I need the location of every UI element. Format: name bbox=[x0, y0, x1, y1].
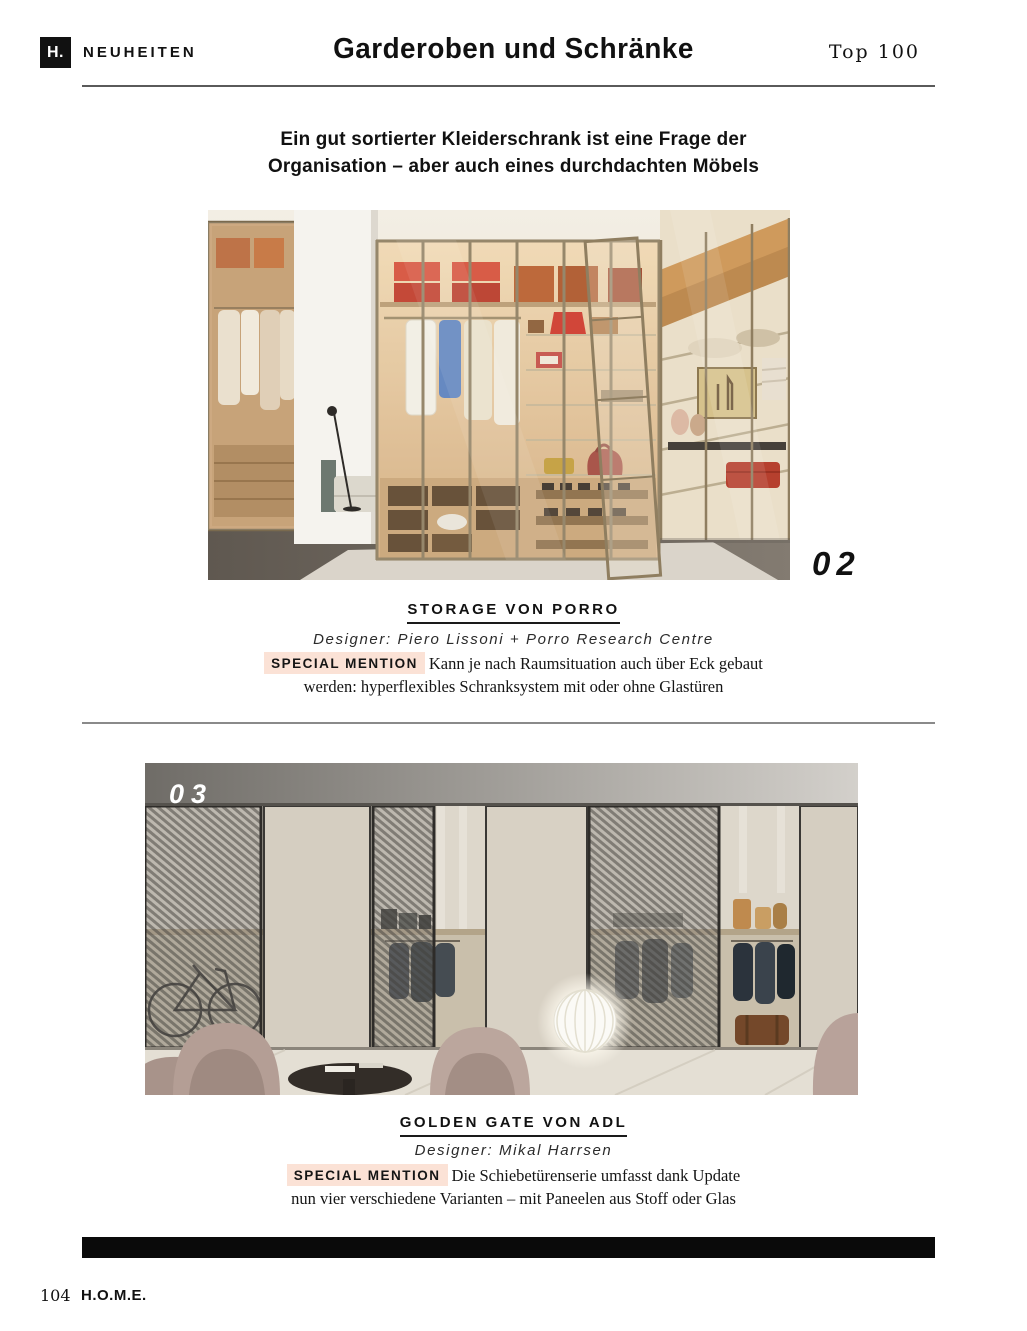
item-number-03: 03 bbox=[169, 779, 213, 810]
item-number-02: 02 bbox=[812, 545, 861, 583]
walk-in-closet-illustration bbox=[208, 210, 790, 580]
item-title: GOLDEN GATE VON ADL bbox=[400, 1114, 628, 1137]
item-title: STORAGE VON PORRO bbox=[407, 601, 619, 624]
description-line-1: SPECIAL MENTIONKann je nach Raumsituatio… bbox=[0, 652, 1027, 674]
suitcase bbox=[735, 1015, 789, 1045]
left-wardrobe bbox=[208, 222, 300, 530]
intro-text: Ein gut sortierter Kleiderschrank ist ei… bbox=[15, 126, 1011, 180]
sphere-lamp bbox=[537, 973, 633, 1069]
description-line-1: SPECIAL MENTIONDie Schiebetürenserie umf… bbox=[0, 1164, 1027, 1186]
mesh-door-panels bbox=[145, 806, 719, 1048]
page-number: 104 bbox=[40, 1286, 71, 1305]
item-description: SPECIAL MENTIONDie Schiebetürenserie umf… bbox=[0, 1161, 1027, 1208]
corner-shelf-unit bbox=[660, 210, 790, 543]
description-text-1: Die Schiebetürenserie umfasst dank Updat… bbox=[452, 1166, 741, 1185]
special-mention-badge: SPECIAL MENTION bbox=[287, 1164, 448, 1186]
sliding-door-illustration bbox=[145, 763, 858, 1095]
header-rule bbox=[82, 85, 935, 87]
photo-walk-in-closet bbox=[208, 210, 790, 580]
section-divider bbox=[82, 722, 935, 724]
description-text-1: Kann je nach Raumsituation auch über Eck… bbox=[429, 654, 763, 673]
item-description: SPECIAL MENTIONKann je nach Raumsituatio… bbox=[0, 649, 1027, 696]
hanging-jackets-right bbox=[731, 941, 795, 1004]
intro-line-1: Ein gut sortierter Kleiderschrank ist ei… bbox=[15, 126, 1011, 153]
magazine-page: H. NEUHEITEN Garderoben und Schränke Top… bbox=[0, 0, 1027, 1331]
description-line-2: werden: hyperflexibles Schranksystem mit… bbox=[0, 677, 1027, 696]
item-2-caption: GOLDEN GATE VON ADL bbox=[0, 1114, 1027, 1137]
magazine-name: H.O.M.E. bbox=[81, 1287, 147, 1304]
designer-line: Designer: Piero Lissoni + Porro Research… bbox=[0, 631, 1027, 648]
designer-line: Designer: Mikal Harrsen bbox=[0, 1142, 1027, 1159]
intro-line-2: Organisation – aber auch eines durchdach… bbox=[15, 153, 1011, 180]
item-1-caption: STORAGE VON PORRO bbox=[0, 601, 1027, 624]
footer-bar bbox=[82, 1237, 935, 1258]
photo-sliding-door-wardrobe: 03 bbox=[145, 763, 858, 1095]
issue-label: Top 100 bbox=[829, 41, 920, 63]
wall-band bbox=[145, 763, 858, 803]
description-line-2: nun vier verschiedene Varianten – mit Pa… bbox=[0, 1189, 1027, 1208]
special-mention-badge: SPECIAL MENTION bbox=[264, 652, 425, 674]
